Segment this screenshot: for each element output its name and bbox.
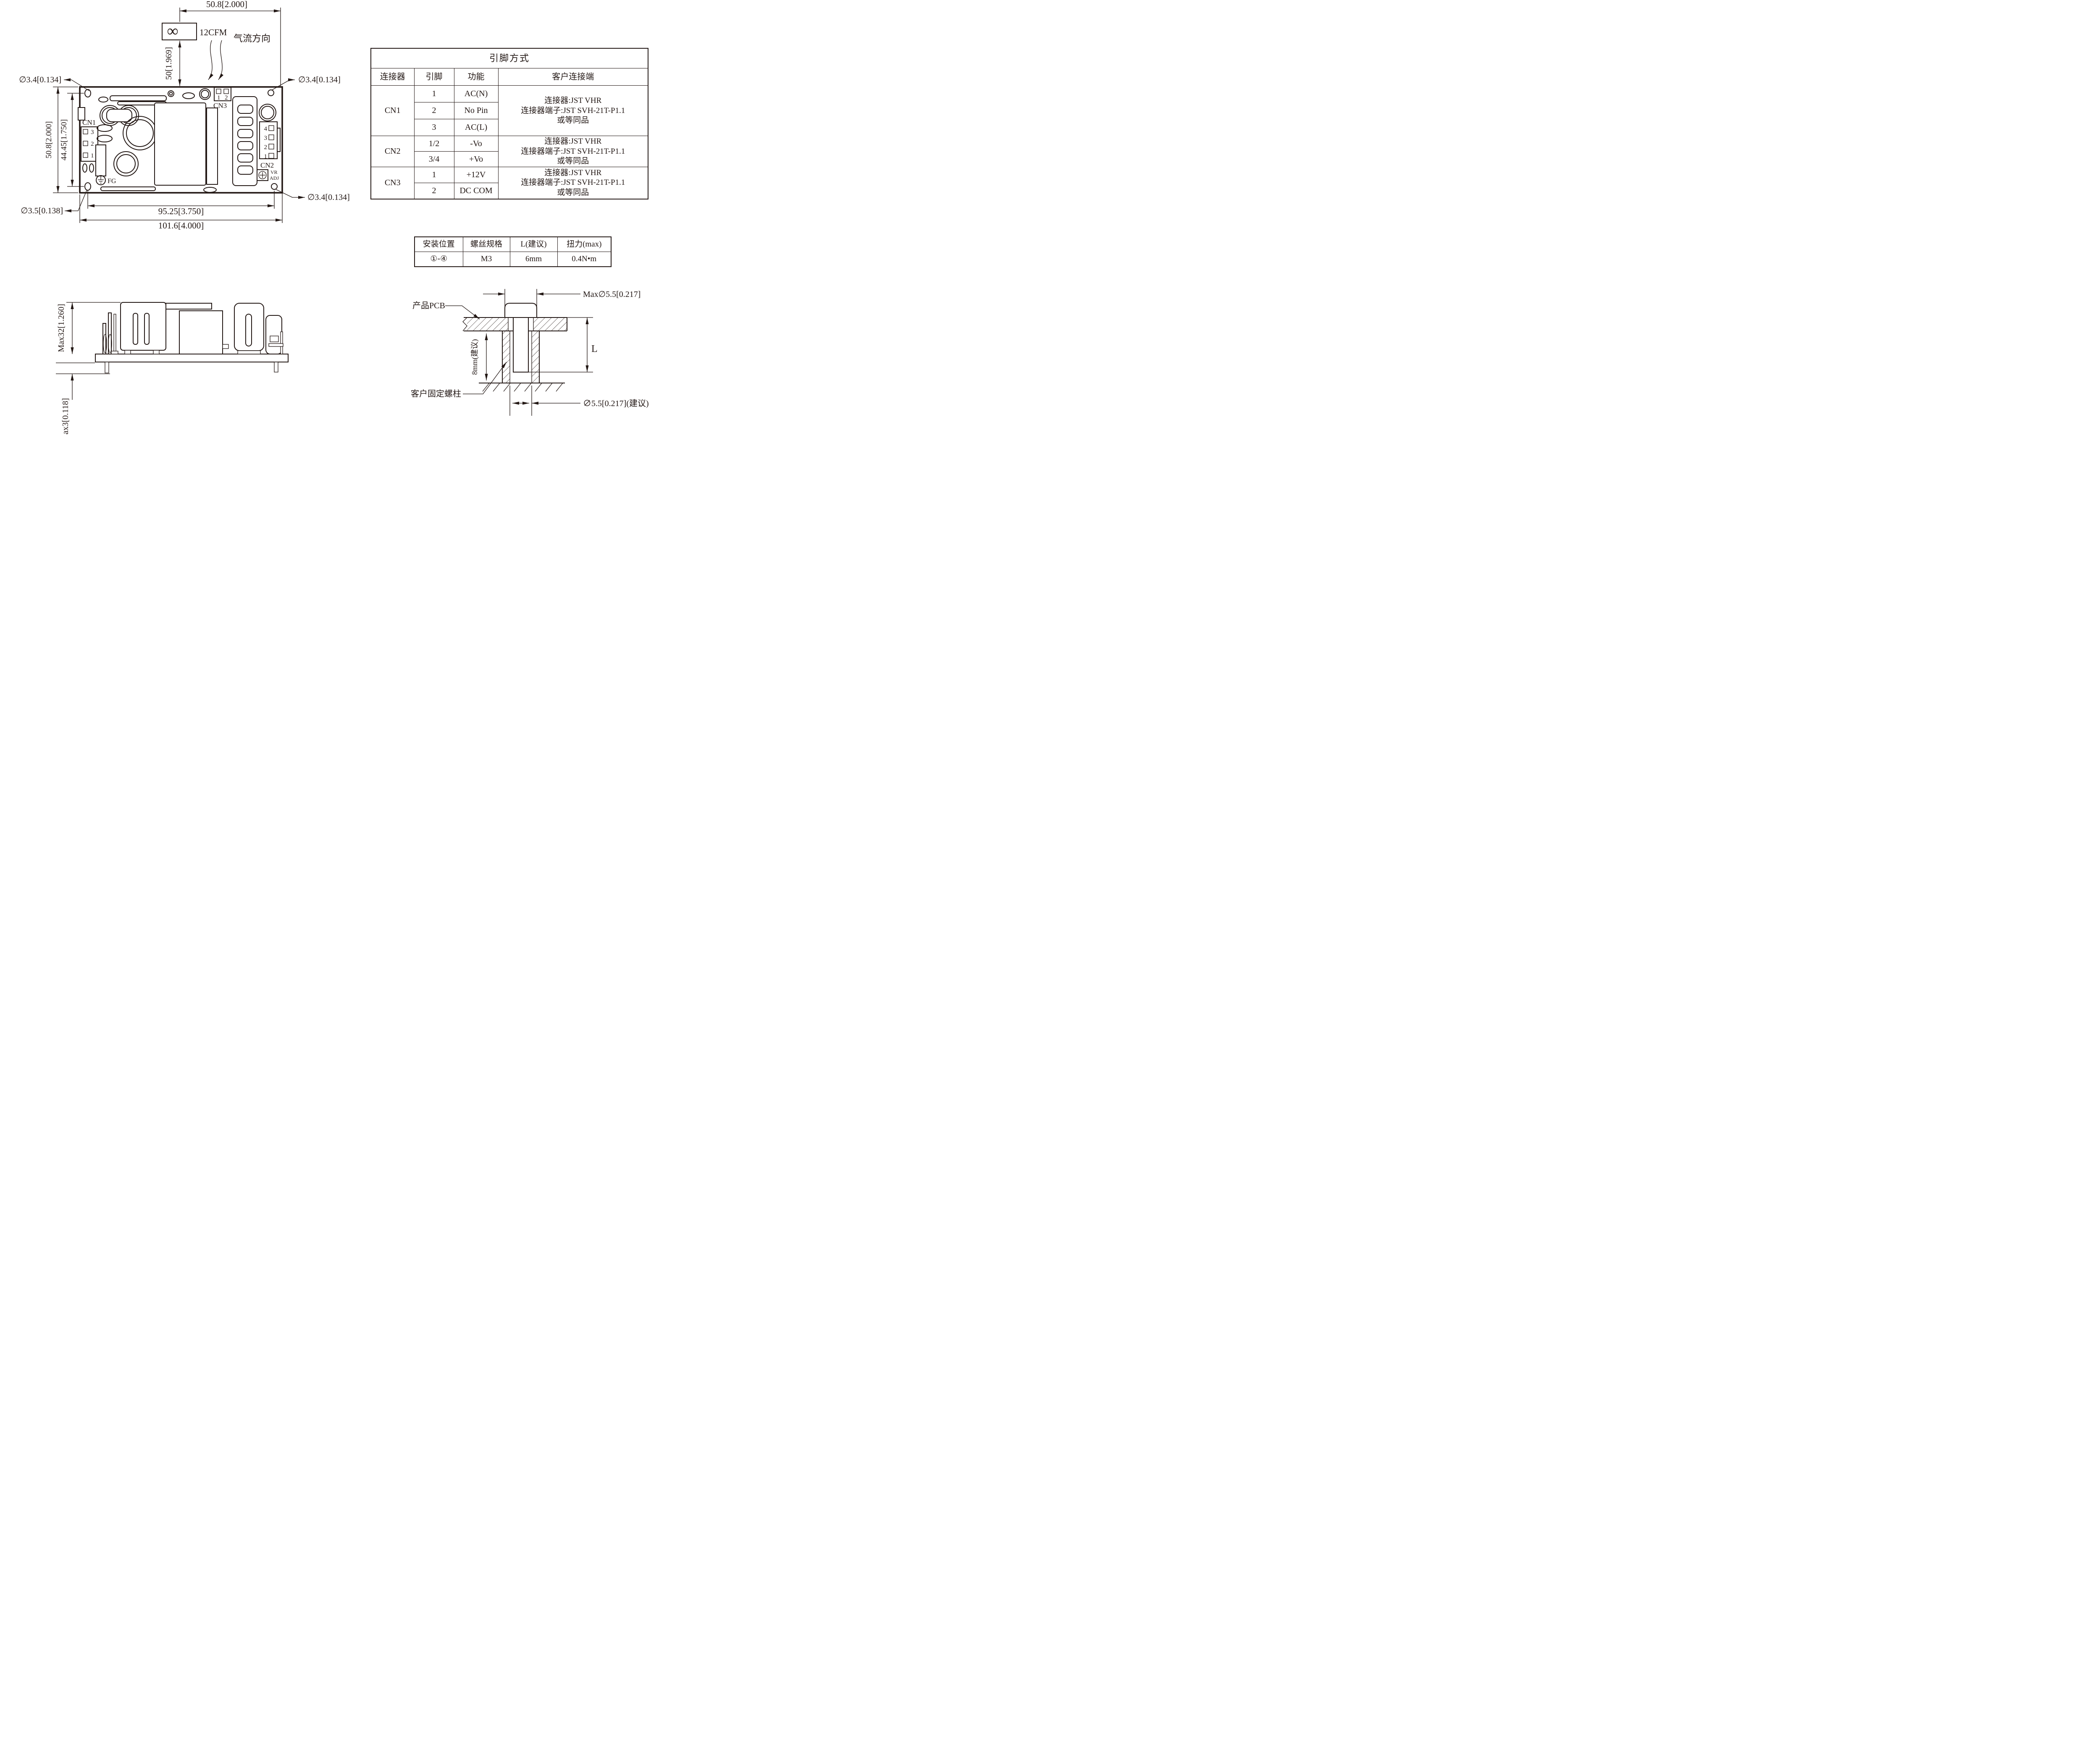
cell-cn1-pin: 3: [414, 119, 454, 136]
col-header-client-side: 客户连接端: [498, 68, 648, 86]
adj-label: ADJ: [270, 175, 279, 181]
dim-width-outer-label: 101.6[4.000]: [158, 220, 204, 231]
cn1-pin2: 2: [91, 141, 94, 147]
client-line: 或等同品: [499, 156, 647, 166]
table-row: 安装位置 螺丝规格 L(建议) 扭力(max): [415, 237, 611, 252]
screw-header-position: 安装位置: [415, 237, 463, 252]
screw-cell-length: 6mm: [510, 252, 557, 267]
hole-tl-label: ∅3.4[0.134]: [19, 75, 61, 84]
cell-cn3-func: +12V: [454, 167, 498, 183]
cn2-pin1: 1: [264, 153, 268, 160]
dim-width-inner-label: 95.25[3.750]: [158, 206, 204, 216]
dim-pin-protrusion: Max3[0.118]: [56, 363, 110, 434]
vr-adj-potentiometer: VR ADJ: [257, 169, 279, 181]
cn1-pin3: 3: [91, 129, 94, 136]
cell-cn1-func: No Pin: [454, 102, 498, 119]
screw-header-torque: 扭力(max): [557, 237, 611, 252]
fan-symbol: ∞ 12CFM 气流方向: [162, 22, 270, 80]
screw-spec-table: 安装位置 螺丝规格 L(建议) 扭力(max) ①-④ M3 6mm 0.4N•…: [414, 236, 612, 267]
top-view: ∞ 12CFM 气流方向 50.8[2.000] 50[1.969]: [19, 0, 350, 231]
col-header-function: 功能: [454, 68, 498, 86]
airflow-arrow: [218, 40, 222, 80]
screw-header-length: L(建议): [510, 237, 557, 252]
cell-cn2: CN2: [371, 136, 414, 167]
fan-cfm-label: 12CFM: [199, 27, 227, 37]
side-max-pin-label: Max3[0.118]: [61, 398, 70, 434]
cell-cn1-pin: 1: [414, 86, 454, 102]
cell-cn2-pin: 1/2: [414, 136, 454, 152]
screw-detail: 产品PCB Max∅5.5[0.217]: [411, 289, 649, 416]
ground: [479, 383, 565, 391]
pin-assignment-table: 引脚方式 连接器 引脚 功能 客户连接端 CN1 1 AC(N) 连接器:JST…: [370, 48, 648, 199]
cell-cn3-pin: 2: [414, 183, 454, 199]
detail-hole-dia-label: ∅5.5[0.217](建议): [583, 399, 649, 408]
hole-br-label: ∅3.4[0.134]: [307, 193, 350, 202]
dim-fan-height-label: 50[1.969]: [164, 47, 173, 80]
screw-cell-position: ①-④: [415, 252, 463, 267]
client-line: 或等同品: [499, 115, 647, 126]
cell-cn1-pin: 2: [414, 102, 454, 119]
dim-fan-offset-label: 50.8[2.000]: [206, 0, 247, 9]
col-header-connector: 连接器: [371, 68, 414, 86]
cell-cn2-func: +Vo: [454, 152, 498, 167]
detail-length-label: L: [591, 344, 598, 354]
table-row: CN1 1 AC(N) 连接器:JST VHR 连接器端子:JST SVH-21…: [371, 86, 648, 102]
client-line: 连接器:JST VHR: [499, 96, 647, 106]
screw-shaft: [513, 317, 528, 372]
heatsink: [233, 97, 257, 186]
side-pcb-board: [95, 354, 288, 362]
hole-bl-label: ∅3.5[0.138]: [21, 206, 63, 215]
vr-label: VR: [270, 169, 278, 175]
client-line: 连接器端子:JST SVH-21T-P1.1: [499, 147, 647, 157]
cell-cn1-client: 连接器:JST VHR 连接器端子:JST SVH-21T-P1.1 或等同品: [498, 86, 648, 136]
pcb-board: CN1 3 2 1: [78, 87, 282, 193]
cn3-pin1: 1: [217, 94, 220, 101]
detail-depth-label: 8mm(建议): [470, 339, 479, 375]
dim-board-width: 95.25[3.750] 101.6[4.000]: [80, 191, 282, 231]
fan-blade-icon: ∞: [167, 22, 178, 40]
side-max-height-label: Max32[1.260]: [57, 304, 66, 352]
detail-standoff-label: 客户固定螺柱: [411, 389, 461, 399]
client-line: 连接器端子:JST SVH-21T-P1.1: [499, 106, 647, 116]
cell-cn3: CN3: [371, 167, 414, 199]
dim-height-outer-label: 50.8[2.000]: [45, 121, 53, 159]
col-header-pin: 引脚: [414, 68, 454, 86]
side-components: [103, 302, 283, 354]
screw-cell-spec: M3: [463, 252, 510, 267]
table-row: ①-④ M3 6mm 0.4N•m: [415, 252, 611, 267]
table-row: CN2 1/2 -Vo 连接器:JST VHR 连接器端子:JST SVH-21…: [371, 136, 648, 152]
table-row: CN3 1 +12V 连接器:JST VHR 连接器端子:JST SVH-21T…: [371, 167, 648, 183]
screw-cell-torque: 0.4N•m: [557, 252, 611, 267]
cn3-label: CN3: [213, 102, 227, 110]
hole-tr-label: ∅3.4[0.134]: [298, 75, 341, 84]
screw-header-spec: 螺丝规格: [463, 237, 510, 252]
cell-cn2-func: -Vo: [454, 136, 498, 152]
cell-cn1-func: AC(L): [454, 119, 498, 136]
cell-cn3-client: 连接器:JST VHR 连接器端子:JST SVH-21T-P1.1 或等同品: [498, 167, 648, 199]
cn3-pin2: 2: [225, 94, 228, 101]
client-line: 或等同品: [499, 188, 647, 198]
cn1-pin1: 1: [91, 152, 94, 159]
detail-head-dia-label: Max∅5.5[0.217]: [583, 290, 640, 299]
cn1-label: CN1: [82, 118, 96, 126]
cell-cn3-func: DC COM: [454, 183, 498, 199]
dim-height-inner-label: 44.45[1.750]: [60, 119, 68, 160]
cell-cn3-pin: 1: [414, 167, 454, 183]
cell-cn1-func: AC(N): [454, 86, 498, 102]
fg-label: FG: [108, 178, 116, 185]
side-view: Max32[1.260]: [56, 302, 288, 434]
detail-pcb-label: 产品PCB: [412, 301, 445, 310]
cn2-label: CN2: [260, 161, 274, 169]
cell-cn2-pin: 3/4: [414, 152, 454, 167]
client-line: 连接器端子:JST SVH-21T-P1.1: [499, 178, 647, 188]
cn2-pin4: 4: [264, 126, 268, 132]
client-line: 连接器:JST VHR: [499, 136, 647, 147]
cell-cn2-client: 连接器:JST VHR 连接器端子:JST SVH-21T-P1.1 或等同品: [498, 136, 648, 167]
cn2-pin3: 3: [264, 135, 268, 142]
airflow-direction-label: 气流方向: [234, 33, 270, 44]
cell-cn1: CN1: [371, 86, 414, 136]
pin-table-title: 引脚方式: [371, 48, 648, 68]
client-line: 连接器:JST VHR: [499, 168, 647, 178]
airflow-arrow: [208, 40, 212, 80]
dim-fan-height: 50[1.969]: [164, 41, 180, 86]
screw-head: [505, 303, 537, 317]
cn2-pin2: 2: [264, 144, 268, 151]
transformer: [155, 103, 206, 185]
dim-board-height: 50.8[2.000] 44.45[1.750]: [45, 87, 84, 193]
